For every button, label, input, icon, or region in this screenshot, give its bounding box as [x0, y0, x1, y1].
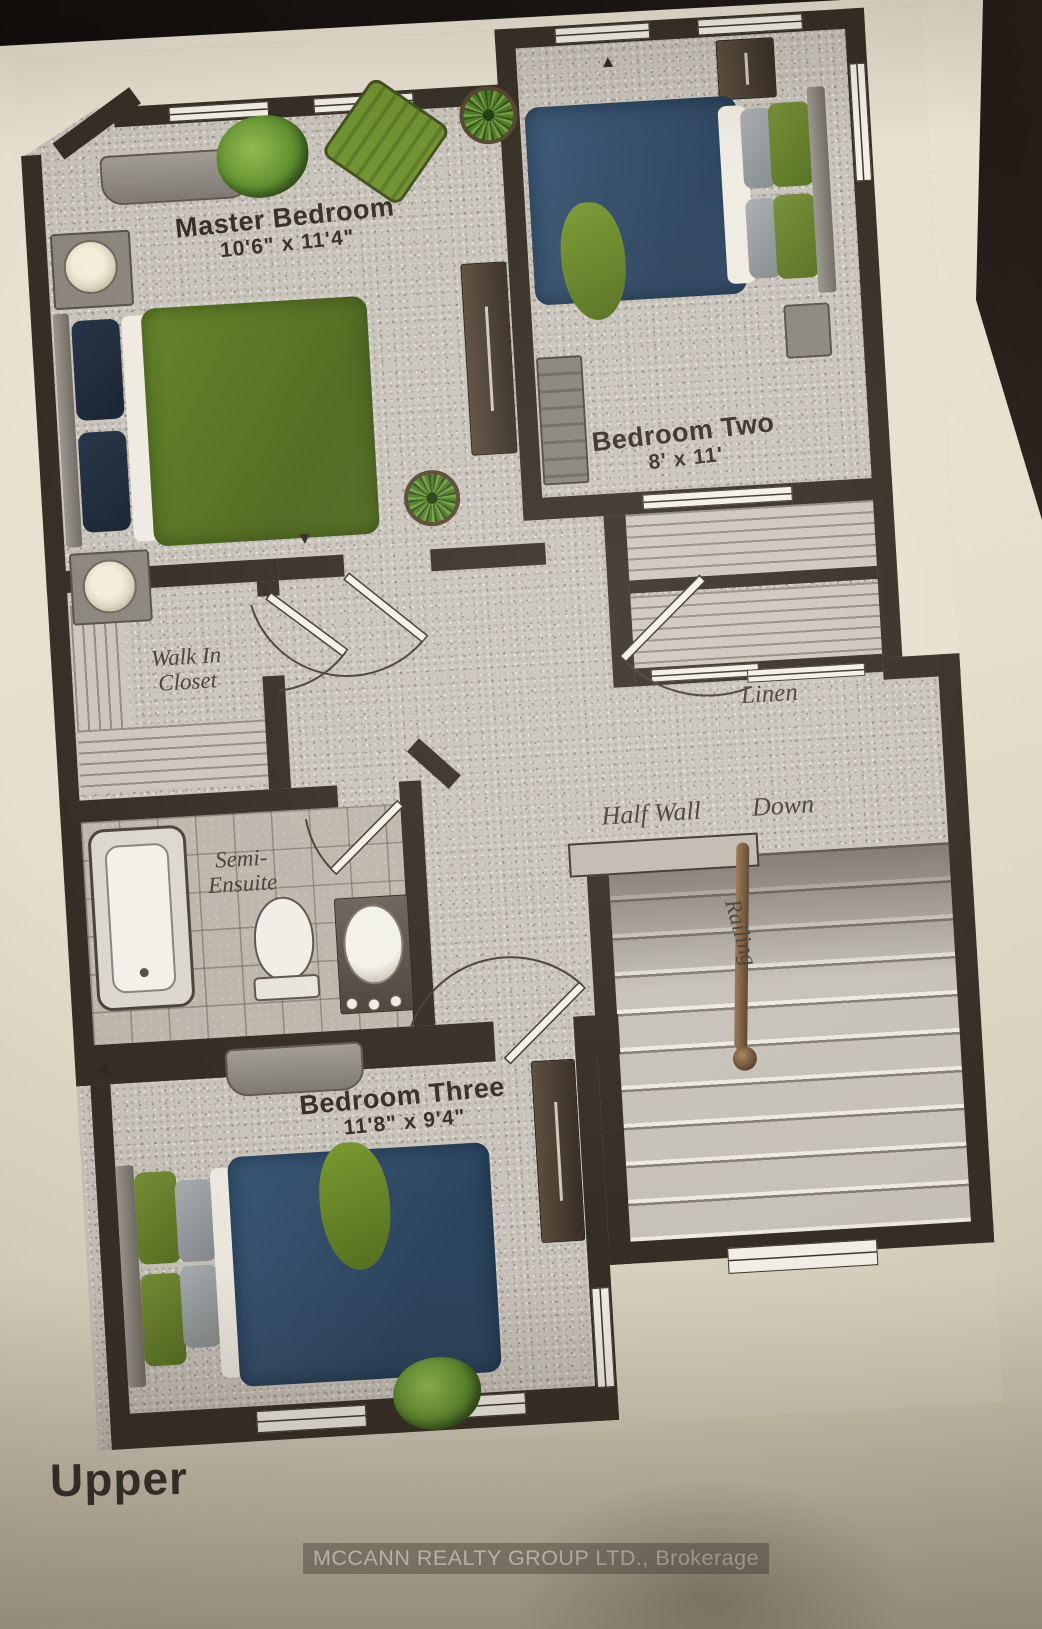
floor-title: Upper — [50, 1451, 189, 1507]
floor-plan-drawing: ▼ ▲ ◀ Master Bedroom 10'6" x 11'4" Bedro… — [15, 4, 1003, 1455]
semi-ensuite-label: Semi-Ensuite — [181, 843, 304, 901]
bedroom-three-door — [407, 953, 589, 1070]
walkin-closet-label: Walk In Closet — [120, 640, 253, 698]
ensuite-door — [305, 800, 407, 875]
bedroom-two-door — [616, 573, 753, 701]
master-bedroom-door — [250, 569, 430, 682]
door-marker-icon: ▲ — [599, 53, 617, 71]
brokerage-watermark: MCCANN REALTY GROUP LTD., Brokerage — [303, 1543, 769, 1574]
door-marker-icon: ◀ — [95, 1059, 109, 1077]
floor-plan-photo: ▼ ▲ ◀ Master Bedroom 10'6" x 11'4" Bedro… — [0, 0, 1042, 1629]
door-marker-icon: ▼ — [296, 529, 314, 547]
